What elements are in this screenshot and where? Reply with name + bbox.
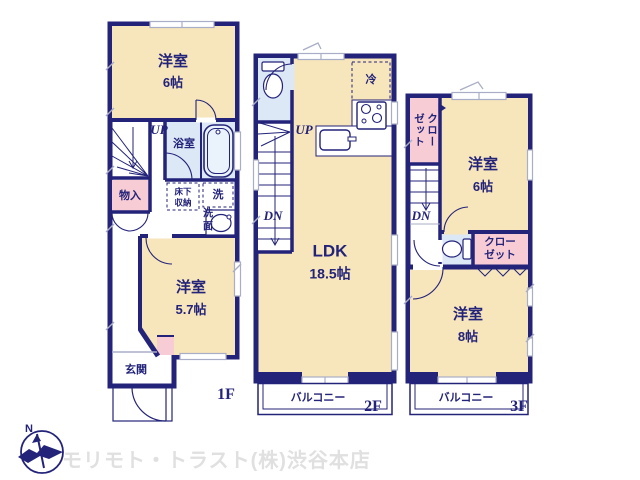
3f-closet-left-area xyxy=(410,98,440,164)
1f-storage-area xyxy=(112,180,150,212)
3f-wall-return-right xyxy=(496,372,528,381)
3f-bedroom8-area xyxy=(410,268,528,379)
2f-wall-return-left xyxy=(258,372,302,381)
3f-bedroom8-door-gap xyxy=(413,264,443,270)
3f-bedroom6-door-gap xyxy=(444,230,468,235)
1f-shoe-cabinet xyxy=(157,336,174,355)
1f-washbasin-icon xyxy=(206,210,235,235)
1f-washer-box xyxy=(203,183,233,207)
1f-bedroom6-area xyxy=(112,26,235,120)
compass-icon xyxy=(18,431,63,473)
3f-toilet-door-gap xyxy=(438,240,443,262)
2f-stove-icon xyxy=(357,102,386,129)
1f-bathtub-icon xyxy=(204,125,233,177)
3f-balcony xyxy=(410,384,528,415)
floor-2f-plan xyxy=(252,43,398,415)
3f-closet-right-area xyxy=(473,234,528,266)
1f-underfloor-storage-box xyxy=(167,183,199,210)
1f-bedroom57-area xyxy=(140,238,235,355)
1f-entrance-door xyxy=(113,386,172,421)
1f-bedroom6-door-gap xyxy=(196,118,216,123)
2f-wall-return-right xyxy=(348,372,392,381)
2f-balcony xyxy=(258,384,392,415)
floorplan-page: 洋室 6帖 浴室 UP 物入 床下収納 洗 洗面 洋室 5.7帖 玄関 1F U… xyxy=(0,0,640,480)
2f-toilet-icon xyxy=(262,62,284,98)
3f-toilet-icon xyxy=(443,239,472,259)
floor-3f-plan xyxy=(404,82,534,415)
2f-toilet-door-gap xyxy=(290,64,295,90)
1f-bedroom57-door-gap xyxy=(148,234,172,239)
floorplan-drawing xyxy=(0,0,640,480)
floor-1f-plan xyxy=(106,22,241,422)
3f-wall-return-left xyxy=(410,372,438,381)
2f-sink-icon xyxy=(320,130,356,150)
